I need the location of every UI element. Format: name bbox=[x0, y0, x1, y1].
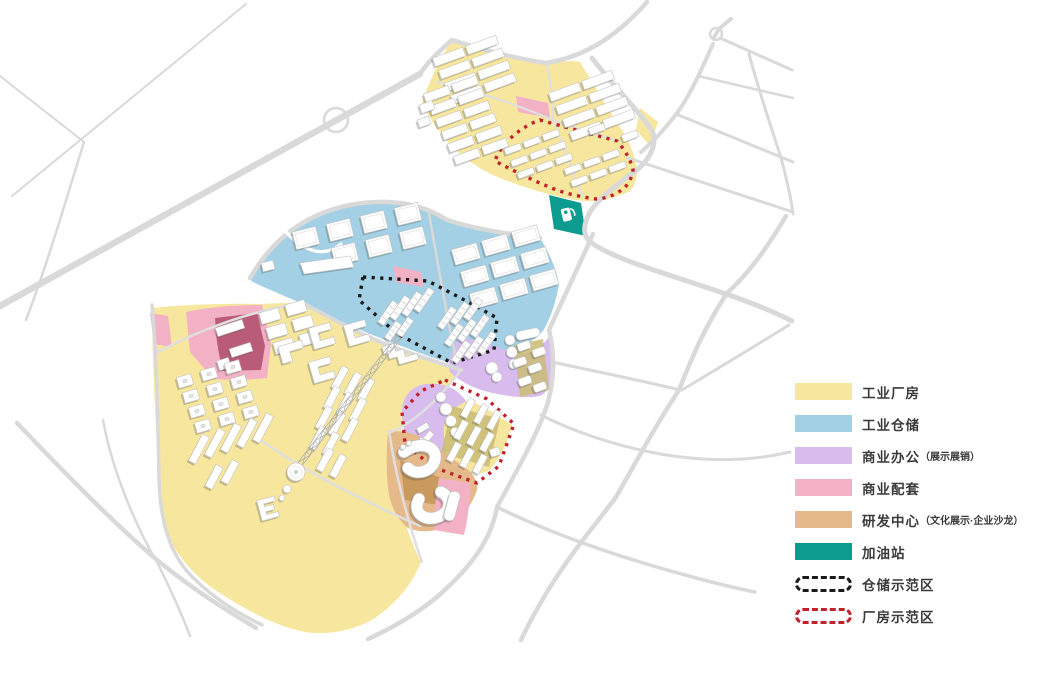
legend-swatch-commercial-office bbox=[795, 447, 852, 464]
legend-item-industrial-storage: 工业仓储 bbox=[795, 415, 1040, 432]
legend-swatch-storage-demo bbox=[795, 576, 852, 592]
legend-item-commercial-office: 商业办公（展示展销） bbox=[795, 447, 1040, 464]
legend-item-rd-center: 研发中心（文化展示·企业沙龙） bbox=[795, 511, 1040, 528]
legend-swatch-industrial-factory bbox=[795, 383, 852, 400]
legend-label-commercial-support: 商业配套 bbox=[862, 478, 920, 498]
legend-swatch-industrial-storage bbox=[795, 415, 852, 432]
building bbox=[415, 116, 431, 130]
legend-item-gas-station: 加油站 bbox=[795, 543, 1040, 560]
legend-item-industrial-factory: 工业厂房 bbox=[795, 383, 1040, 400]
legend-sublabel-commercial-office: （展示展销） bbox=[920, 448, 980, 463]
legend-swatch-commercial-support bbox=[795, 479, 852, 496]
legend-swatch-rd-center bbox=[795, 511, 852, 528]
legend: 工业厂房工业仓储商业办公（展示展销）商业配套研发中心（文化展示·企业沙龙）加油站… bbox=[795, 383, 1040, 639]
legend-label-factory-demo: 厂房示范区 bbox=[862, 606, 935, 626]
legend-swatch-gas-station bbox=[795, 543, 852, 560]
legend-label-industrial-factory: 工业厂房 bbox=[862, 382, 920, 402]
legend-label-commercial-office: 商业办公 bbox=[862, 446, 920, 466]
legend-sublabel-rd-center: （文化展示·企业沙龙） bbox=[920, 512, 1023, 527]
legend-label-storage-demo: 仓储示范区 bbox=[862, 574, 935, 594]
legend-item-factory-demo: 厂房示范区 bbox=[795, 607, 1040, 624]
legend-label-gas-station: 加油站 bbox=[862, 542, 906, 562]
legend-swatch-factory-demo bbox=[795, 608, 852, 624]
legend-label-rd-center: 研发中心 bbox=[862, 510, 920, 530]
legend-item-storage-demo: 仓储示范区 bbox=[795, 575, 1040, 592]
legend-label-industrial-storage: 工业仓储 bbox=[862, 414, 920, 434]
legend-item-commercial-support: 商业配套 bbox=[795, 479, 1040, 496]
masterplan-canvas: 工业厂房工业仓储商业办公（展示展销）商业配套研发中心（文化展示·企业沙龙）加油站… bbox=[0, 0, 1045, 674]
